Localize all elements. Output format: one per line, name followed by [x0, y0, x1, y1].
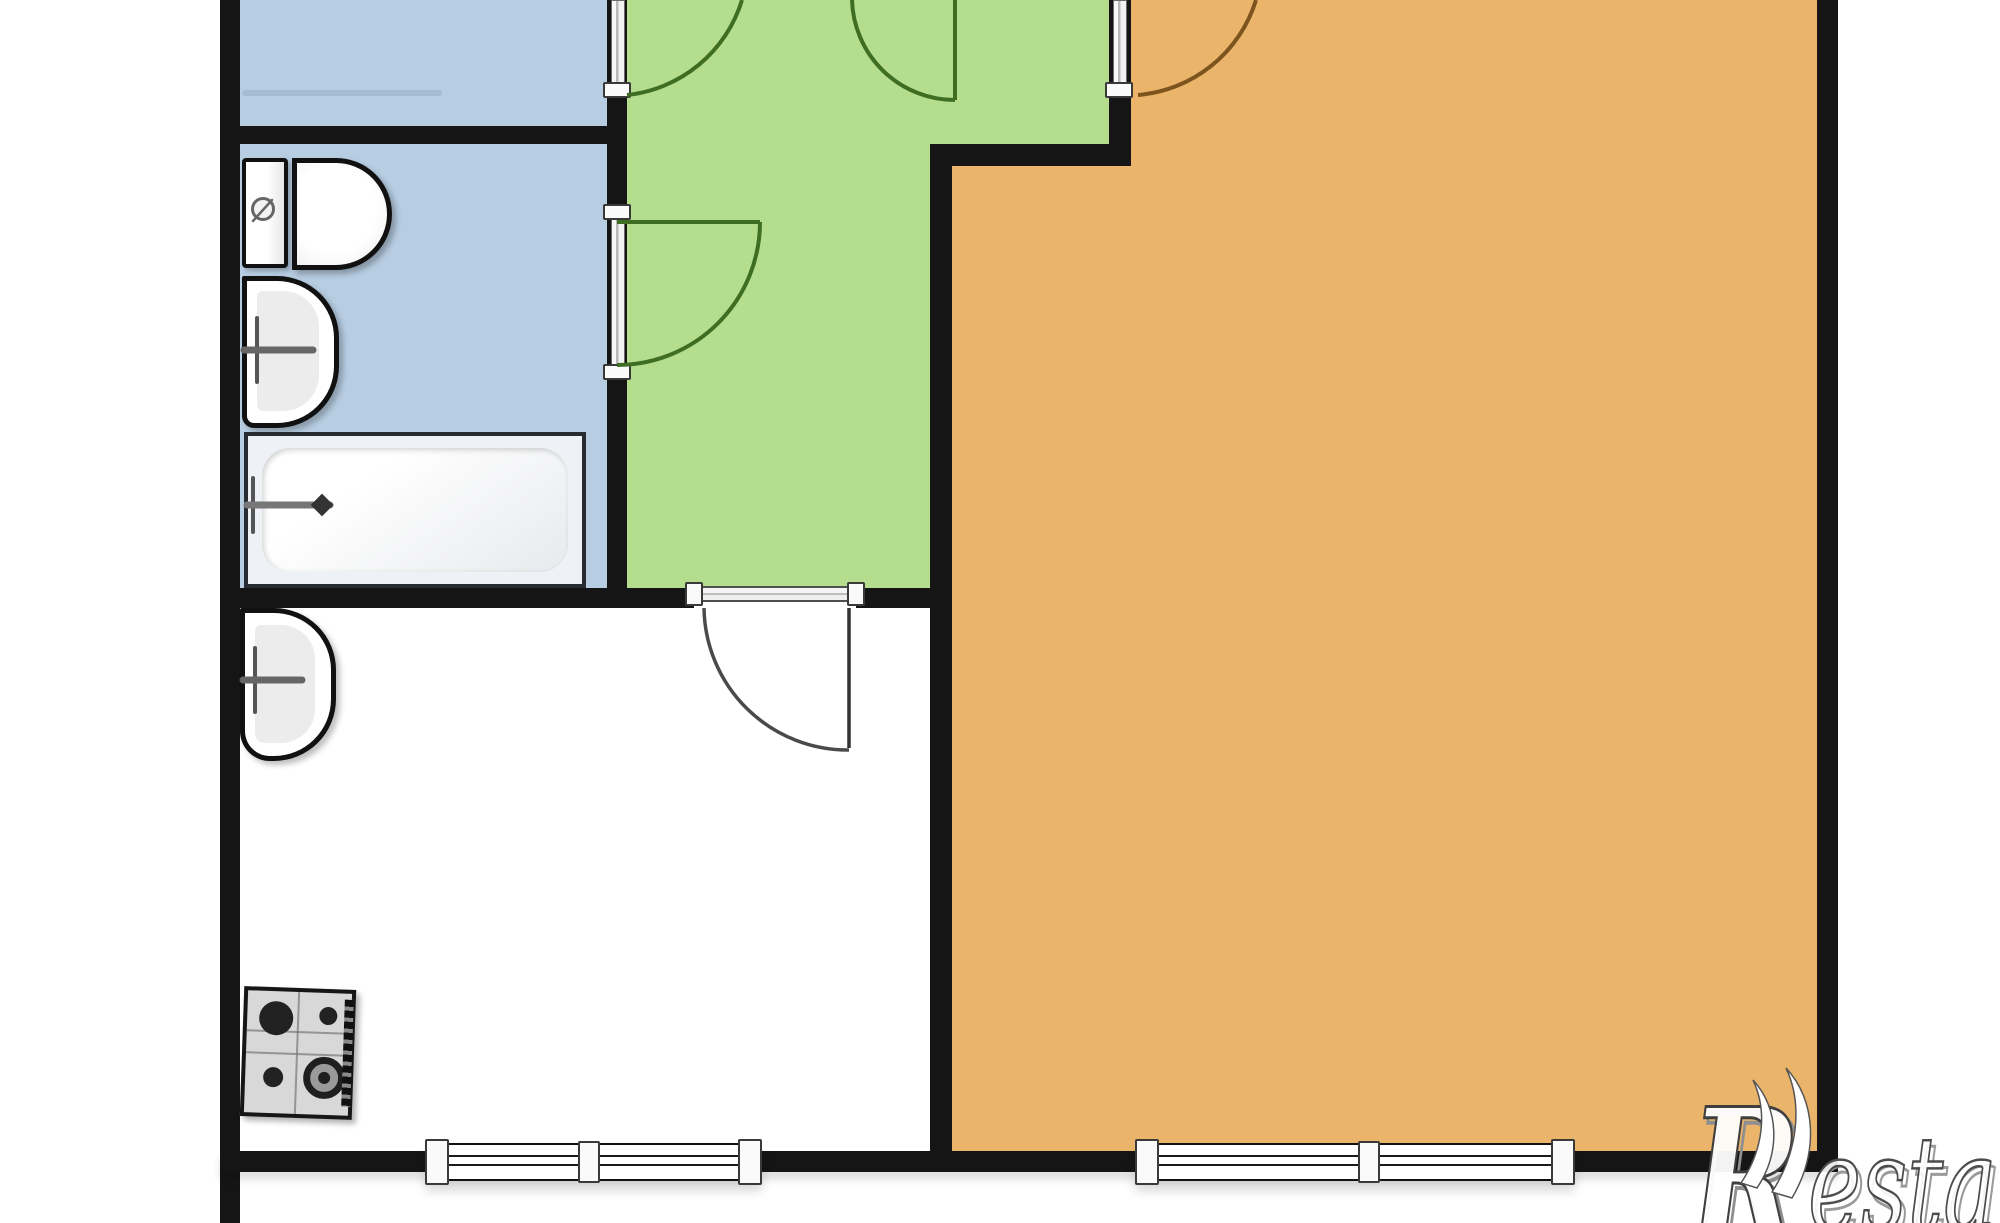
- wall-left: [220, 0, 240, 1223]
- door-jamb-living: [1105, 82, 1133, 98]
- wall-kitchen-living: [930, 144, 952, 1172]
- kitchen-window-cap-left: [425, 1139, 449, 1185]
- kitchen-window-cap-right: [738, 1139, 762, 1185]
- stove-burner-ring-center: [318, 1072, 330, 1084]
- door-leaf-kitchen: [696, 586, 856, 602]
- room-living: [1131, 0, 1817, 1151]
- kitchen-window-mullion: [578, 1141, 600, 1183]
- living-window-cap-left: [1135, 1139, 1159, 1185]
- living-window-cap-right: [1551, 1139, 1575, 1185]
- bathtub-icon: [244, 432, 586, 588]
- living-window-glazing-1: [1137, 1155, 1573, 1157]
- door-jamb-kitchen-right: [847, 582, 865, 606]
- washbasin-inner: [257, 291, 319, 411]
- wall-living-jut: [930, 144, 1131, 166]
- wall-hall-bottom-left: [220, 588, 694, 608]
- room-wc: [240, 0, 607, 126]
- toilet-flush-button-icon: [251, 197, 275, 221]
- living-window-mullion: [1358, 1141, 1380, 1183]
- stove-grid-h2: [246, 1051, 350, 1057]
- wc-floor-shading: [242, 90, 442, 96]
- door-leaf-living: [1113, 0, 1127, 88]
- stove-burner-small-2: [263, 1067, 284, 1088]
- living-window-glazing-2: [1137, 1164, 1573, 1166]
- wall-right: [1817, 0, 1838, 1172]
- floor-plan: R R estate estate: [0, 0, 2000, 1223]
- living-window: [1135, 1143, 1575, 1181]
- bathtub-inner: [262, 448, 568, 572]
- stove-grid-h1: [247, 1029, 351, 1035]
- kitchen-sink-icon: [240, 608, 336, 761]
- kitchen-sink-inner: [255, 625, 315, 743]
- door-leaf-wc: [611, 0, 625, 88]
- stove-knobs-strip: [341, 1000, 354, 1108]
- washbasin-icon: [242, 276, 339, 428]
- door-jamb-bathroom-bottom: [603, 364, 631, 380]
- door-jamb-wc: [603, 82, 631, 98]
- watermark-rest-shadow: estate: [1812, 1113, 2000, 1223]
- door-leaf-bathroom: [611, 216, 625, 372]
- door-jamb-kitchen-left: [685, 582, 703, 606]
- wall-wc-bath-divider: [220, 126, 627, 144]
- door-jamb-bathroom-top: [603, 204, 631, 220]
- stove-burner-small-1: [319, 1007, 338, 1026]
- room-hallway: [627, 0, 930, 588]
- room-living-lower: [952, 166, 1131, 1151]
- stove-burner-ring: [302, 1056, 345, 1099]
- stove-icon: [240, 986, 356, 1120]
